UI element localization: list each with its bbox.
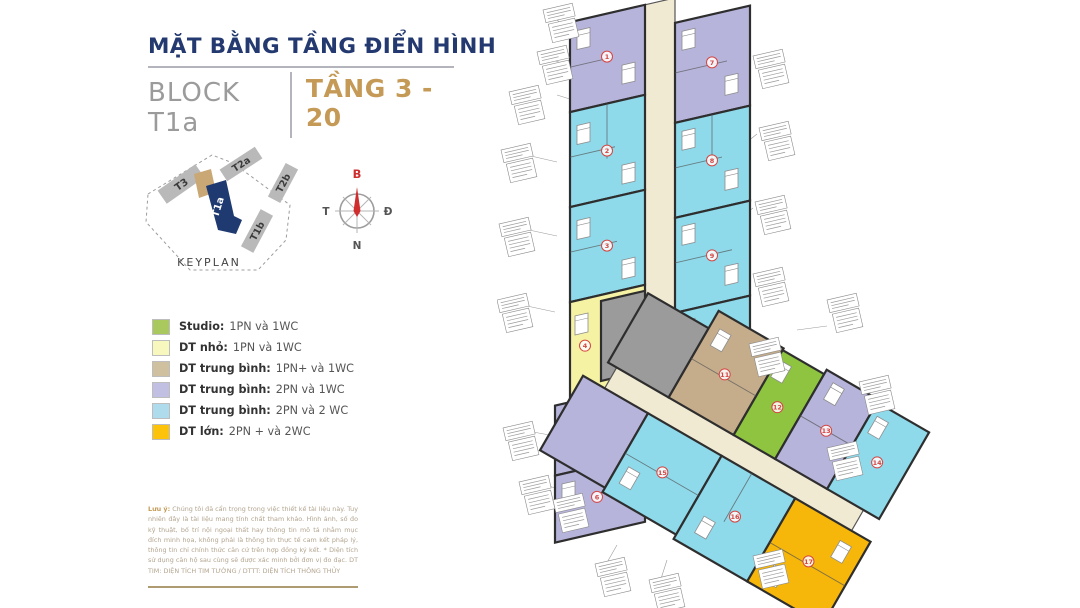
floorplan-brochure-page: MẶT BẰNG TẦNG ĐIỂN HÌNH BLOCK T1a TẦNG 3… bbox=[0, 0, 1080, 608]
unit-info-tag bbox=[537, 45, 574, 85]
unit-info-tag bbox=[509, 85, 546, 125]
page-title: MẶT BẰNG TẦNG ĐIỂN HÌNH bbox=[148, 34, 454, 68]
legend-swatch-dt-tb-2pn2wc bbox=[152, 403, 170, 419]
compass-rose: B T Đ N bbox=[318, 164, 396, 258]
floor-range: TẦNG 3 - 20 bbox=[290, 72, 454, 138]
unit-info-tag bbox=[499, 217, 536, 257]
unit-info-tag bbox=[755, 195, 792, 235]
unit-info-tag bbox=[501, 143, 538, 183]
compass-label-south: N bbox=[353, 240, 362, 252]
compass-label-west: T bbox=[322, 206, 330, 218]
legend-item-dt-tb-2pn1wc: DT trung bình: 2PN và 1WC bbox=[152, 382, 354, 397]
compass-label-north: B bbox=[353, 167, 362, 181]
legend-item-dt-tb-1pn: DT trung bình: 1PN+ và 1WC bbox=[152, 361, 354, 376]
svg-text:16: 16 bbox=[730, 513, 740, 521]
svg-text:11: 11 bbox=[720, 371, 730, 379]
unit-info-tag bbox=[649, 573, 686, 608]
keyplan: T3 T2a T2b T1b T1a KEYPLAN bbox=[136, 142, 316, 280]
unit-info-tag bbox=[519, 475, 556, 515]
svg-text:9: 9 bbox=[710, 252, 715, 260]
unit-info-tag bbox=[753, 267, 790, 307]
svg-text:14: 14 bbox=[873, 459, 883, 467]
legend-item-dt-tb-2pn2wc: DT trung bình: 2PN và 2 WC bbox=[152, 403, 354, 418]
legend-item-dt-lon: DT lớn: 2PN + và 2WC bbox=[152, 424, 354, 439]
legend-swatch-dt-tb-1pn bbox=[152, 361, 170, 377]
svg-text:8: 8 bbox=[710, 157, 715, 165]
unit-info-tag bbox=[543, 3, 580, 43]
keyplan-building-t2b: T2b bbox=[268, 163, 298, 203]
unit-info-tag bbox=[753, 49, 790, 89]
svg-text:7: 7 bbox=[710, 59, 715, 67]
compass-label-east: Đ bbox=[384, 206, 393, 218]
header-subrow: BLOCK T1a TẦNG 3 - 20 bbox=[148, 72, 454, 138]
svg-text:4: 4 bbox=[583, 342, 588, 350]
floor-plan: 1 2 3 4 5 6 7 8 9 10 bbox=[497, 0, 1080, 608]
unit-info-tag bbox=[759, 121, 796, 161]
note-label: Lưu ý: bbox=[148, 505, 170, 513]
svg-text:15: 15 bbox=[658, 469, 668, 477]
keyplan-building-t1a-highlighted: T1a bbox=[206, 180, 242, 234]
svg-text:12: 12 bbox=[773, 404, 782, 412]
svg-text:13: 13 bbox=[822, 427, 831, 435]
unit-info-tag bbox=[595, 557, 632, 597]
unit-type-legend: Studio: 1PN và 1WC DT nhỏ: 1PN và 1WC DT… bbox=[152, 319, 354, 445]
svg-text:2: 2 bbox=[605, 147, 610, 155]
keyplan-caption: KEYPLAN bbox=[177, 256, 241, 269]
svg-text:17: 17 bbox=[804, 558, 813, 566]
legend-swatch-dt-lon bbox=[152, 424, 170, 440]
legend-item-studio: Studio: 1PN và 1WC bbox=[152, 319, 354, 334]
disclaimer-note: Lưu ý: Chúng tôi đã cẩn trọng trong việc… bbox=[148, 504, 358, 588]
svg-text:6: 6 bbox=[595, 493, 600, 501]
legend-swatch-studio bbox=[152, 319, 170, 335]
note-text: Chúng tôi đã cẩn trọng trong việc thiết … bbox=[148, 505, 358, 575]
legend-swatch-dt-tb-2pn1wc bbox=[152, 382, 170, 398]
unit-info-tag bbox=[497, 293, 534, 333]
unit-info-tag bbox=[827, 293, 864, 333]
unit-info-tag bbox=[503, 421, 540, 461]
block-name: BLOCK T1a bbox=[148, 72, 276, 138]
compass-center-dot bbox=[354, 208, 360, 214]
legend-swatch-dt-nho bbox=[152, 340, 170, 356]
svg-text:1: 1 bbox=[605, 53, 610, 61]
header: MẶT BẰNG TẦNG ĐIỂN HÌNH BLOCK T1a TẦNG 3… bbox=[148, 34, 454, 138]
svg-text:3: 3 bbox=[605, 242, 610, 250]
keyplan-building-t2a: T2a bbox=[220, 147, 263, 182]
keyplan-building-t1b: T1b bbox=[241, 209, 273, 253]
legend-item-dt-nho: DT nhỏ: 1PN và 1WC bbox=[152, 340, 354, 355]
